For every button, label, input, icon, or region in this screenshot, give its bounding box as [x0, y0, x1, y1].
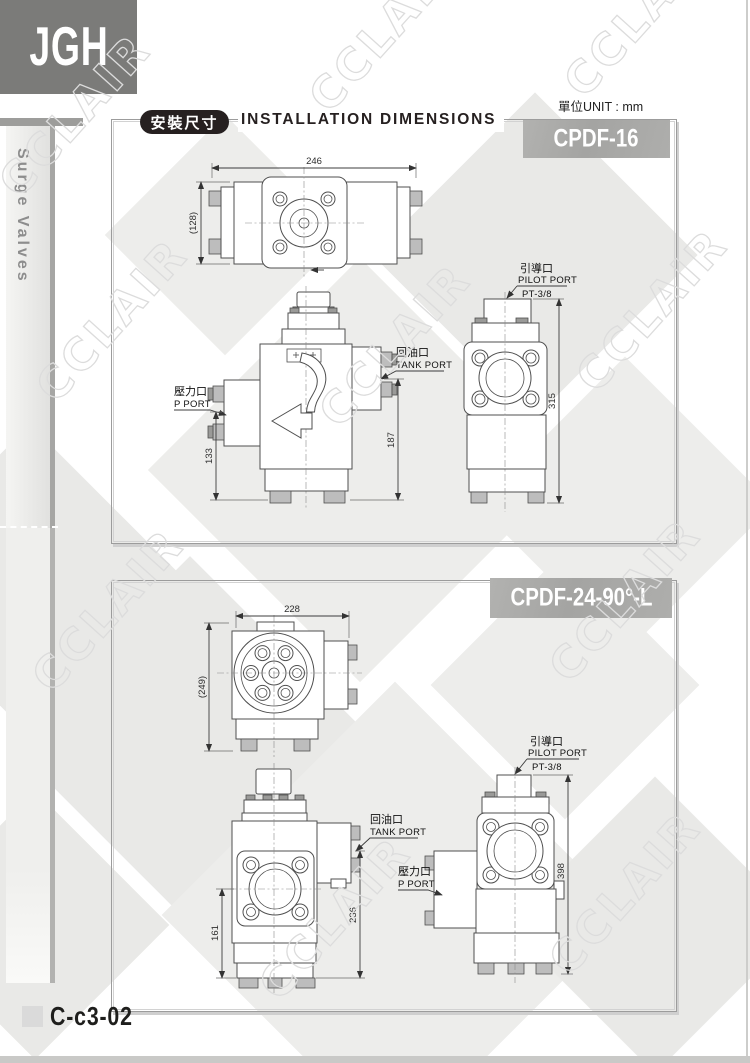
- brand-logo: JGH: [0, 0, 137, 94]
- model-label-cpdf24: CPDF-24-90°-L: [490, 578, 672, 618]
- cpdf16-front-view: 壓力口 P PORT 回油口 TANK PORT 133 187: [174, 286, 452, 510]
- sidebar-tab-lower: [6, 528, 55, 983]
- dim-246: 246: [306, 156, 322, 167]
- dim-228: 228: [284, 604, 300, 615]
- dim-398: 398: [556, 863, 567, 879]
- cpdf24-drawing: 228 (249): [112, 581, 676, 1011]
- p-port-label-zh: 壓力口: [398, 865, 431, 878]
- cpdf16-top-view: 246 (128): [188, 156, 422, 279]
- dim-236: 236: [348, 907, 359, 923]
- cpdf24-front-view: 回油口 TANK PORT 161 236: [210, 763, 426, 993]
- pilot-port-label-zh: 引導口: [530, 734, 563, 748]
- page-edge-line: [746, 0, 748, 1056]
- cpdf16-panel: 246 (128): [111, 119, 677, 544]
- cclair-watermark: CCLAIR: [554, 0, 726, 107]
- p-port-label-en: P PORT: [398, 879, 435, 890]
- p-port-label-en: P PORT: [174, 399, 211, 410]
- pilot-port-label-en: PILOT PORT: [528, 748, 587, 759]
- pilot-port-thread: PT-3/8: [532, 762, 562, 773]
- sidebar-category-label: Surge Valves: [13, 148, 31, 284]
- cpdf16-drawing: 246 (128): [112, 120, 676, 543]
- dim-187: 187: [386, 432, 397, 448]
- sidebar-dashed-divider: [0, 526, 58, 528]
- p-port-label-zh: 壓力口: [174, 385, 207, 398]
- unit-note: 單位UNIT : mm: [558, 96, 643, 115]
- dim-133: 133: [204, 448, 215, 464]
- cpdf16-side-view: 引導口 PILOT PORT PT-3/8: [464, 261, 577, 512]
- pilot-port-thread: PT-3/8: [522, 289, 552, 300]
- cpdf24-panel: 228 (249): [111, 580, 677, 1012]
- section-title-en: INSTALLATION DIMENSIONS: [238, 110, 504, 132]
- catalog-page: JGH Surge Valves 安裝尺寸 INSTALLATION DIMEN…: [0, 0, 750, 1063]
- pilot-port-label-en: PILOT PORT: [518, 275, 577, 286]
- footer-marker-square: [22, 1006, 43, 1027]
- pilot-port-label-zh: 引導口: [520, 261, 553, 275]
- cpdf24-side-view: 引導口 PILOT PORT PT-3/8: [398, 734, 587, 983]
- section-title-zh: 安裝尺寸: [140, 110, 229, 134]
- dim-315: 315: [547, 393, 558, 409]
- model-label-cpdf16: CPDF-16: [523, 120, 670, 158]
- sidebar-top-bar: [0, 118, 83, 126]
- tank-port-label-zh: 回油口: [370, 812, 403, 826]
- tank-port-label-en: TANK PORT: [370, 827, 426, 838]
- cpdf24-top-view: 228 (249): [197, 604, 362, 757]
- tank-port-label-en: TANK PORT: [396, 360, 452, 371]
- dim-161: 161: [210, 925, 221, 941]
- tank-port-label-zh: 回油口: [396, 345, 429, 359]
- cclair-watermark: CCLAIR: [299, 0, 471, 122]
- dim-249: (249): [197, 676, 208, 698]
- brand-logo-text: JGH: [29, 16, 108, 79]
- footer-bar: [0, 1056, 750, 1063]
- doc-code: C-c3-02: [50, 1001, 133, 1032]
- dim-128: (128): [188, 212, 199, 234]
